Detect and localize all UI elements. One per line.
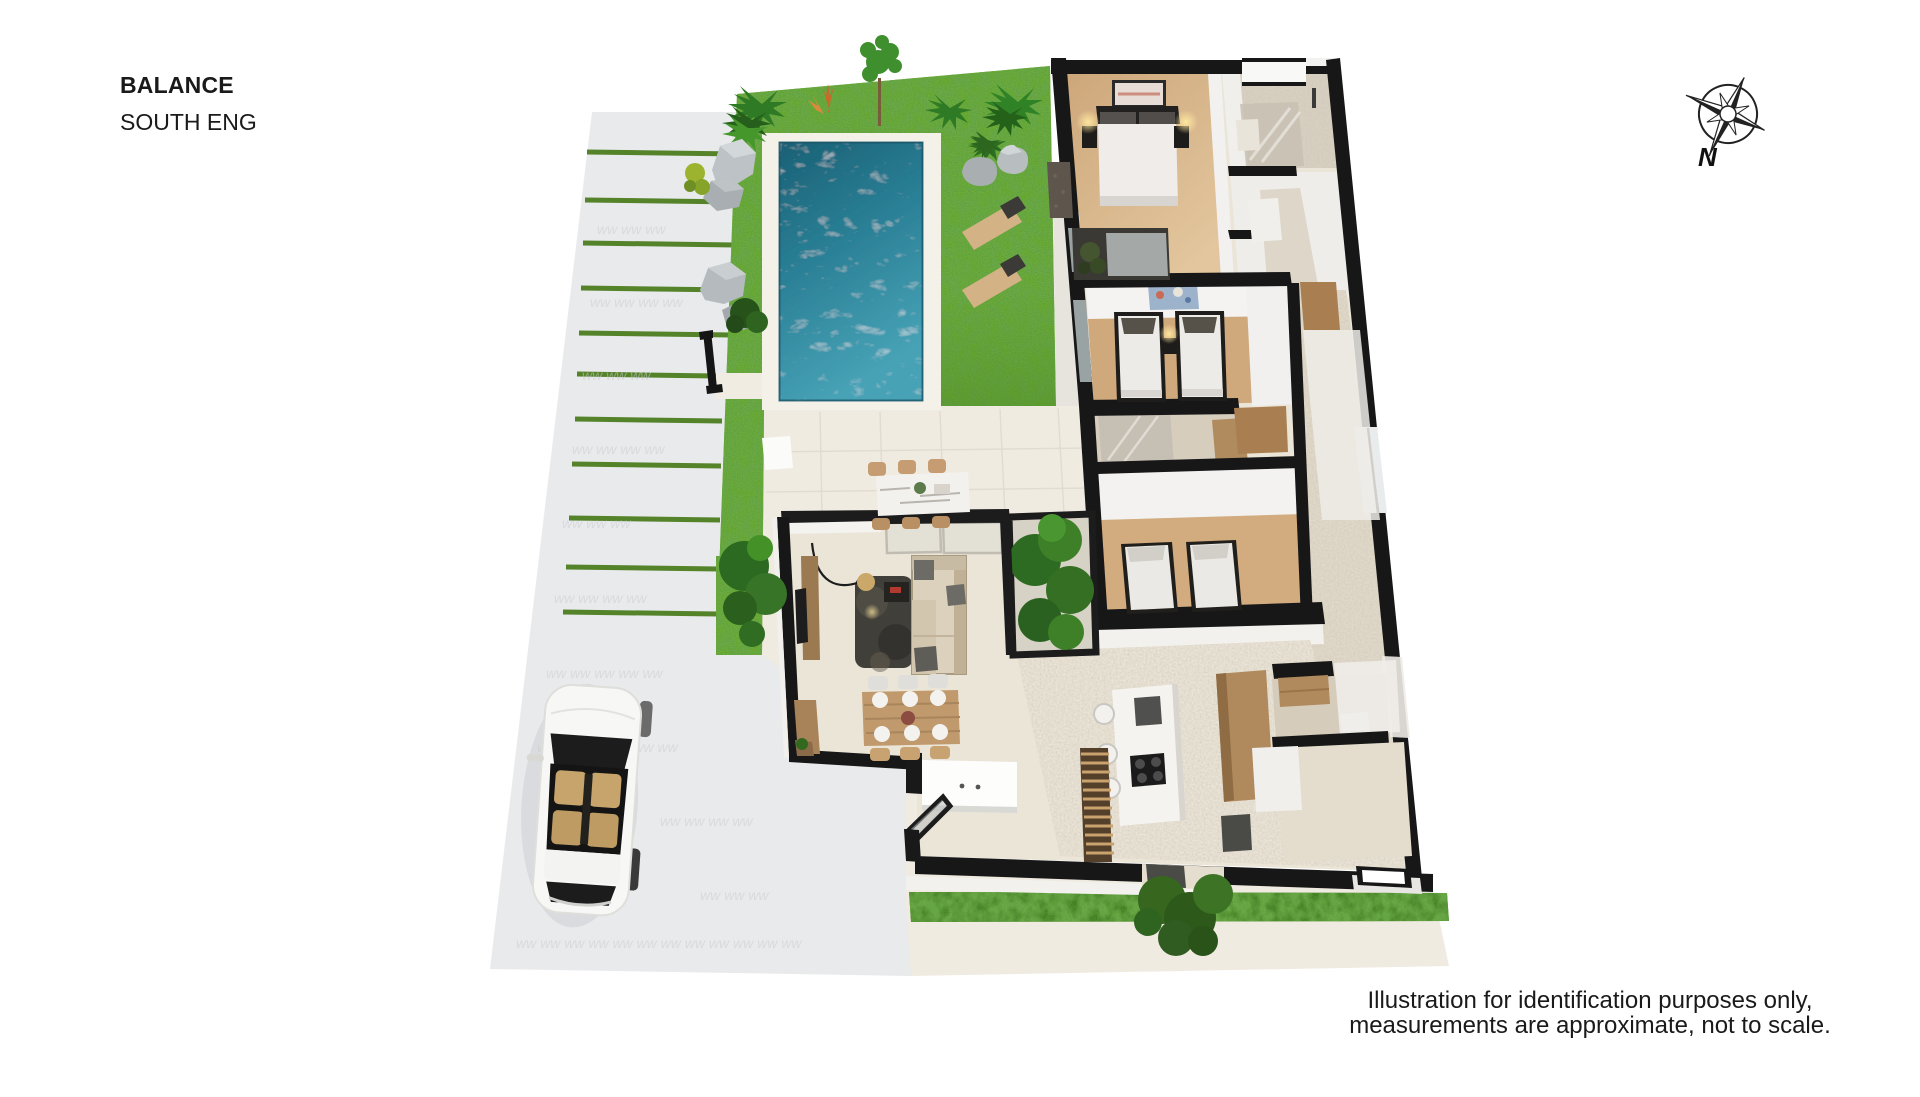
svg-text:N: N	[1698, 142, 1718, 172]
svg-text:ww ww ww ww: ww ww ww ww	[590, 294, 683, 310]
svg-text:ww ww ww ww ww: ww ww ww ww ww	[546, 665, 664, 681]
svg-text:ww ww ww: ww ww ww	[582, 367, 651, 383]
svg-text:ww ww ww: ww ww ww	[700, 887, 769, 903]
svg-text:ww ww ww: ww ww ww	[562, 515, 631, 531]
svg-text:ww ww ww ww ww ww ww ww: ww ww ww ww ww ww ww ww ww ww ww ww	[516, 935, 802, 951]
svg-text:ww ww ww ww: ww ww ww ww	[660, 813, 753, 829]
svg-text:ww ww ww ww: ww ww ww ww	[572, 441, 665, 457]
svg-text:ww ww ww ww: ww ww ww ww	[554, 590, 647, 606]
svg-text:ww ww ww: ww ww ww	[597, 221, 666, 237]
